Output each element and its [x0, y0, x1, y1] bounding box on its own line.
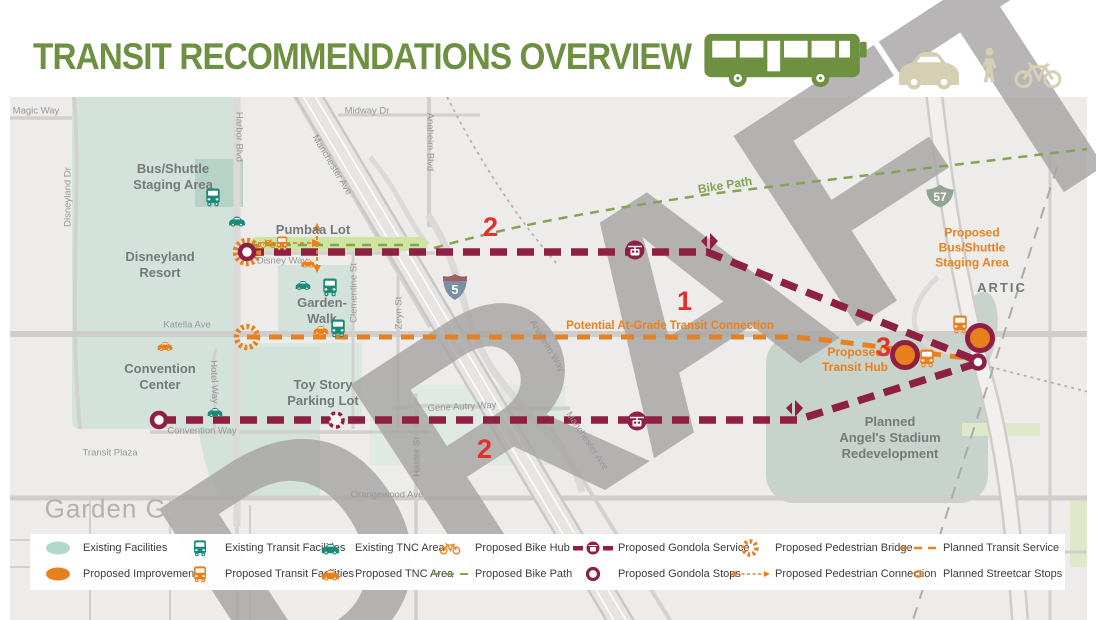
street-label: Disneyland Dr	[63, 167, 74, 227]
gondola-icon	[626, 241, 645, 260]
existing-facilities-swatch	[38, 541, 78, 555]
gondola-stop-swatch	[573, 565, 613, 583]
i5-shield: 5	[442, 273, 468, 301]
pedestrian-connection-swatch	[730, 569, 770, 579]
city-label: Garden Grove	[45, 494, 222, 525]
proposed-transit-facility-icon	[275, 236, 289, 251]
proposed-tnc-icon	[312, 325, 330, 336]
legend-item: Proposed Improvements	[38, 563, 203, 585]
existing-transit-facility-icon	[204, 187, 222, 207]
street-label: Hotel Way	[208, 360, 221, 404]
existing-tnc-icon	[206, 407, 224, 418]
label-at-grade-connection: Potential At-Grade Transit Connection	[566, 319, 774, 333]
car-icon	[893, 46, 965, 96]
proposed-transit-facility-icon	[918, 348, 936, 368]
existing-tnc-icon	[228, 215, 247, 227]
street-label: Orangewood Ave	[351, 490, 424, 501]
gondola-stop	[152, 413, 166, 427]
existing-tnc-icon	[294, 280, 312, 291]
legend-item: Proposed Bike Hub	[430, 537, 570, 559]
place-label-toystory: Toy Story Parking Lot	[287, 377, 359, 409]
street-label: Midway Dr	[345, 106, 390, 117]
street-label: Katella Ave	[163, 320, 210, 331]
route-number: 2	[483, 212, 498, 243]
transit-hub-stop	[968, 326, 993, 351]
header: TRANSIT RECOMMENDATIONS OVERVIEW	[0, 0, 1096, 97]
route-bend-marker	[786, 400, 803, 417]
existing-transit-facility-icon	[321, 277, 339, 297]
map: 5 57 Bus/Shuttle Staging Area Disneyland…	[10, 97, 1087, 620]
label-proposed-staging: Proposed Bus/Shuttle Staging Area	[935, 226, 1009, 271]
route-number: 2	[477, 434, 492, 465]
legend-item: Proposed Pedestrian Bridge	[730, 537, 913, 559]
proposed-transit-facility-icon	[951, 314, 969, 334]
legend-item: Existing TNC Area	[310, 537, 445, 559]
transit-overview-poster: TRANSIT RECOMMENDATIONS OVERVIEW	[0, 0, 1096, 620]
gondola-stop	[240, 245, 254, 259]
legend-item: Existing Facilities	[38, 537, 167, 559]
sr57-shield: 57	[925, 183, 955, 209]
place-label-convention: Convention Center	[124, 361, 196, 393]
existing-tnc-icon	[310, 542, 350, 555]
place-label-artic: ARTIC	[977, 280, 1027, 296]
street-label: Harbor Blvd	[234, 112, 245, 162]
proposed-bike-hub-icon	[260, 238, 277, 249]
pedestrian-icon	[979, 47, 1000, 91]
proposed-tnc-icon	[310, 568, 350, 581]
streetcar-stop-swatch	[898, 569, 938, 579]
gondola-service-swatch	[573, 540, 613, 556]
street-label: Transit Plaza	[82, 448, 137, 459]
legend-item: Planned Transit Service	[898, 537, 1059, 559]
proposed-transit-icon	[180, 565, 220, 583]
street-label: Magic Way	[13, 106, 60, 117]
gondola-icon	[628, 412, 647, 431]
street-label: Convention Way	[167, 426, 236, 437]
existing-transit-facility-icon	[329, 318, 347, 338]
legend-item: Proposed Gondola Service	[573, 537, 749, 559]
street-label: Anaheim Blvd	[425, 113, 436, 172]
bike-path-swatch	[430, 571, 470, 577]
route-number: 1	[677, 286, 692, 317]
planned-transit-swatch	[898, 545, 938, 551]
proposed-tnc-icon	[156, 341, 174, 352]
bike-hub-icon	[430, 541, 470, 555]
bicycle-icon	[1013, 58, 1063, 94]
street-label: Zeyn St	[394, 297, 405, 330]
legend-item: Proposed Gondola Stops	[573, 563, 741, 585]
legend-item: Planned Streetcar Stops	[898, 563, 1062, 585]
existing-transit-icon	[180, 539, 220, 557]
gondola-stop-dashed	[329, 413, 343, 427]
legend: Existing Facilities Existing Transit Fac…	[30, 534, 1065, 590]
route-bend-marker	[701, 233, 718, 250]
proposed-improvements-swatch	[38, 567, 78, 581]
place-label-disneyland: Disneyland Resort	[125, 249, 194, 281]
bus-icon	[702, 30, 872, 94]
gondola-stop	[972, 356, 985, 369]
route-number: 3	[876, 332, 891, 363]
street-label: Haster St	[412, 437, 423, 477]
street-label: Clementine St	[349, 263, 360, 323]
proposed-tnc-icon	[300, 258, 317, 268]
place-label-staging: Bus/Shuttle Staging Area	[133, 161, 213, 193]
page-title: TRANSIT RECOMMENDATIONS OVERVIEW	[33, 36, 691, 78]
transit-hub-stop	[893, 343, 918, 368]
legend-item: Proposed Bike Path	[430, 563, 572, 585]
pedestrian-bridge-icon	[730, 538, 770, 558]
place-label-stadium: Planned Angel's Stadium Redevelopment	[839, 414, 940, 462]
